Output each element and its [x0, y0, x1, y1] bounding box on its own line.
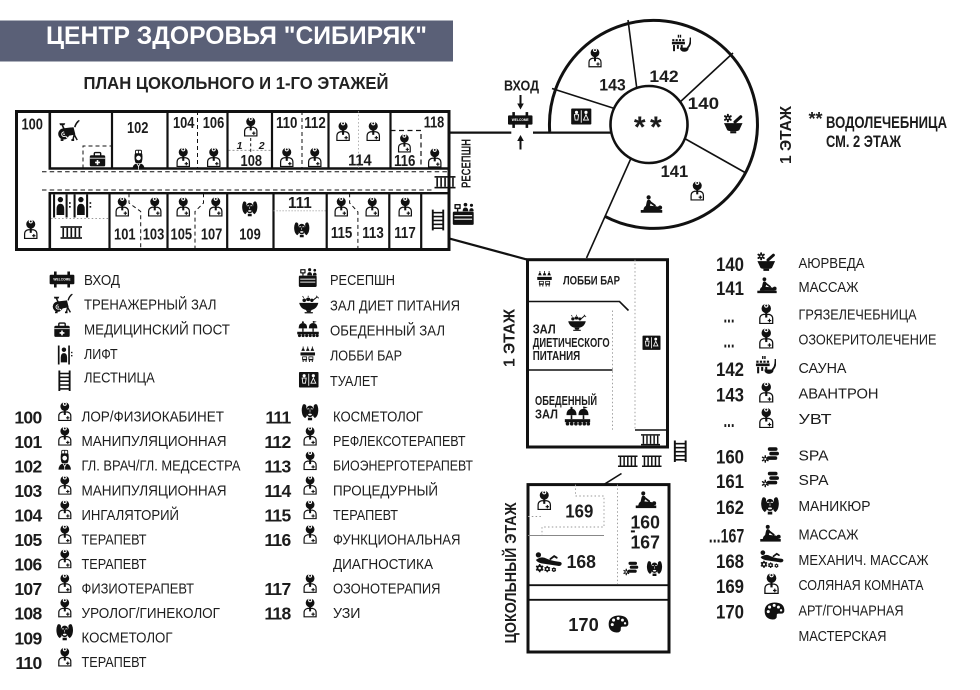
- svg-text:ПИТАНИЯ: ПИТАНИЯ: [533, 349, 581, 363]
- svg-text:...: ...: [724, 411, 735, 432]
- svg-text:ОЗОНОТЕРАПИЯ: ОЗОНОТЕРАПИЯ: [333, 582, 441, 598]
- svg-text:МАНИПУЛЯЦИОННАЯ: МАНИПУЛЯЦИОННАЯ: [82, 434, 227, 450]
- svg-text:МЕХАНИЧ. МАССАЖ: МЕХАНИЧ. МАССАЖ: [799, 553, 930, 569]
- svg-text:103: 103: [143, 226, 165, 243]
- svg-text:ВХОД: ВХОД: [504, 78, 539, 95]
- svg-text:МАССАЖ: МАССАЖ: [799, 280, 860, 296]
- svg-text:110: 110: [276, 115, 298, 132]
- svg-text:114: 114: [264, 481, 291, 501]
- svg-text:105: 105: [14, 530, 42, 550]
- svg-text:106: 106: [14, 555, 42, 575]
- svg-text:ЛОР/ФИЗИОКАБИНЕТ: ЛОР/ФИЗИОКАБИНЕТ: [82, 410, 225, 426]
- svg-text:АЮРВЕДА: АЮРВЕДА: [799, 256, 865, 272]
- svg-text:167: 167: [631, 533, 660, 553]
- svg-text:115: 115: [331, 225, 353, 242]
- svg-text:ЗАЛ: ЗАЛ: [535, 408, 558, 422]
- svg-text:ЗАЛ ДИЕТ ПИТАНИЯ: ЗАЛ ДИЕТ ПИТАНИЯ: [330, 298, 460, 314]
- svg-text:106: 106: [203, 115, 225, 132]
- svg-text:ЛИФТ: ЛИФТ: [84, 347, 118, 363]
- svg-text:142: 142: [716, 360, 744, 381]
- svg-text:ТЕРАПЕВТ: ТЕРАПЕВТ: [333, 508, 398, 524]
- svg-text:...167: ...167: [709, 526, 745, 547]
- svg-text:140: 140: [688, 94, 719, 113]
- svg-text:141: 141: [661, 162, 689, 181]
- svg-text:107: 107: [14, 579, 41, 599]
- svg-text:ФУНКЦИОНАЛЬНАЯ: ФУНКЦИОНАЛЬНАЯ: [333, 532, 461, 548]
- svg-text:114: 114: [348, 152, 372, 169]
- svg-text:118: 118: [424, 115, 445, 132]
- svg-text:КОСМЕТОЛОГ: КОСМЕТОЛОГ: [82, 631, 173, 647]
- svg-text:169: 169: [565, 502, 593, 522]
- svg-text:100: 100: [14, 407, 42, 427]
- svg-text:161: 161: [716, 472, 744, 493]
- svg-text:ВОДОЛЕЧЕБНИЦА: ВОДОЛЕЧЕБНИЦА: [826, 114, 947, 132]
- svg-text:ДИЕТИЧЕСКОГО: ДИЕТИЧЕСКОГО: [533, 336, 610, 350]
- svg-text:140: 140: [716, 255, 744, 276]
- svg-text:168: 168: [716, 552, 744, 573]
- svg-text:КОСМЕТОЛОГ: КОСМЕТОЛОГ: [333, 410, 423, 426]
- svg-text:АВАНТРОН: АВАНТРОН: [799, 387, 879, 403]
- svg-text:ОБЕДЕННЫЙ: ОБЕДЕННЫЙ: [535, 393, 597, 408]
- svg-text:115: 115: [264, 506, 291, 526]
- svg-text:ТЕРАПЕВТ: ТЕРАПЕВТ: [82, 532, 147, 548]
- svg-text:143: 143: [716, 385, 744, 406]
- svg-text:АРТ/ГОНЧАРНАЯ: АРТ/ГОНЧАРНАЯ: [799, 604, 904, 620]
- svg-text:ОБЕДЕННЫЙ ЗАЛ: ОБЕДЕННЫЙ ЗАЛ: [330, 321, 445, 339]
- svg-text:МАСТЕРСКАЯ: МАСТЕРСКАЯ: [799, 629, 887, 645]
- svg-text:162: 162: [716, 498, 744, 519]
- svg-text:ЛЕСТНИЦА: ЛЕСТНИЦА: [84, 371, 155, 387]
- svg-text:ДИАГНОСТИКА: ДИАГНОСТИКА: [333, 557, 433, 573]
- svg-text:143: 143: [599, 76, 626, 95]
- svg-text:109: 109: [14, 628, 42, 648]
- svg-text:...: ...: [724, 306, 735, 327]
- svg-text:МАССАЖ: МАССАЖ: [799, 528, 860, 544]
- svg-text:104: 104: [173, 115, 195, 132]
- svg-text:101: 101: [14, 432, 42, 452]
- svg-text:БИОЭНЕРГОТЕРАПЕВТ: БИОЭНЕРГОТЕРАПЕВТ: [333, 459, 473, 475]
- svg-text:ЛОББИ БАР: ЛОББИ БАР: [563, 274, 620, 288]
- svg-text:СОЛЯНАЯ КОМНАТА: СОЛЯНАЯ КОМНАТА: [799, 578, 924, 594]
- svg-text:МАНИПУЛЯЦИОННАЯ: МАНИПУЛЯЦИОННАЯ: [82, 483, 227, 499]
- svg-text:170: 170: [568, 614, 599, 635]
- svg-text:ЦОКОЛЬНЫЙ ЭТАЖ: ЦОКОЛЬНЫЙ ЭТАЖ: [502, 502, 520, 644]
- svg-text:ОЗОКЕРИТОЛЕЧЕНИЕ: ОЗОКЕРИТОЛЕЧЕНИЕ: [799, 333, 937, 349]
- svg-text:МЕДИЦИНСКИЙ ПОСТ: МЕДИЦИНСКИЙ ПОСТ: [84, 321, 230, 339]
- svg-text:ПРОЦЕДУРНЫЙ: ПРОЦЕДУРНЫЙ: [333, 481, 438, 499]
- svg-text:РЕФЛЕКСОТЕРАПЕВТ: РЕФЛЕКСОТЕРАПЕВТ: [333, 434, 466, 450]
- svg-text:112: 112: [304, 115, 326, 132]
- svg-text:101: 101: [114, 226, 136, 243]
- svg-text:116: 116: [264, 530, 291, 550]
- svg-text:104: 104: [14, 506, 42, 526]
- svg-text:168: 168: [567, 552, 596, 572]
- svg-text:ПЛАН ЦОКОЛЬНОГО И 1-ГО ЭТАЖЕЙ: ПЛАН ЦОКОЛЬНОГО И 1-ГО ЭТАЖЕЙ: [84, 72, 389, 93]
- svg-text:102: 102: [127, 120, 149, 137]
- svg-text:ГРЯЗЕЛЕЧЕБНИЦА: ГРЯЗЕЛЕЧЕБНИЦА: [799, 308, 917, 324]
- svg-text:ИНГАЛЯТОРИЙ: ИНГАЛЯТОРИЙ: [82, 506, 180, 524]
- svg-text:УРОЛОГ/ГИНЕКОЛОГ: УРОЛОГ/ГИНЕКОЛОГ: [82, 606, 221, 622]
- svg-text:УЗИ: УЗИ: [333, 606, 361, 622]
- svg-text:111: 111: [265, 407, 291, 427]
- svg-text:102: 102: [14, 456, 42, 476]
- svg-text:ГЛ. ВРАЧ/ГЛ. МЕДСЕСТРА: ГЛ. ВРАЧ/ГЛ. МЕДСЕСТРА: [82, 459, 241, 475]
- svg-text:110: 110: [15, 653, 42, 673]
- svg-text:108: 108: [14, 604, 42, 624]
- svg-text:169: 169: [716, 577, 744, 598]
- svg-text:ЗАЛ: ЗАЛ: [533, 322, 556, 336]
- svg-text:105: 105: [171, 226, 193, 243]
- svg-text:РЕСЕПШН: РЕСЕПШН: [330, 273, 395, 289]
- svg-text:МАНИКЮР: МАНИКЮР: [799, 499, 871, 515]
- svg-text:109: 109: [239, 226, 261, 243]
- svg-text:ЦЕНТР ЗДОРОВЬЯ "СИБИРЯК": ЦЕНТР ЗДОРОВЬЯ "СИБИРЯК": [46, 22, 427, 50]
- svg-text:100: 100: [21, 117, 43, 134]
- svg-text:ТЕРАПЕВТ: ТЕРАПЕВТ: [82, 557, 147, 573]
- svg-text:ФИЗИОТЕРАПЕВТ: ФИЗИОТЕРАПЕВТ: [82, 582, 195, 598]
- svg-text:108: 108: [241, 153, 263, 170]
- svg-text:118: 118: [264, 604, 291, 624]
- svg-text:SPA: SPA: [799, 449, 829, 465]
- svg-text:111: 111: [288, 195, 312, 212]
- svg-text:103: 103: [14, 481, 42, 501]
- svg-text:ТЕРАПЕВТ: ТЕРАПЕВТ: [82, 655, 147, 671]
- svg-text:1 ЭТАЖ: 1 ЭТАЖ: [502, 308, 519, 367]
- svg-text:142: 142: [649, 67, 678, 86]
- svg-text:112: 112: [264, 432, 291, 452]
- svg-text:113: 113: [362, 225, 384, 242]
- svg-text:...: ...: [724, 331, 735, 352]
- svg-text:117: 117: [394, 225, 416, 242]
- svg-text:1 ЭТАЖ: 1 ЭТАЖ: [778, 105, 795, 164]
- svg-text:116: 116: [394, 153, 416, 170]
- svg-text:113: 113: [264, 456, 291, 476]
- svg-text:160: 160: [631, 512, 660, 532]
- svg-text:141: 141: [716, 279, 744, 300]
- svg-text:УВТ: УВТ: [799, 412, 832, 428]
- svg-text:160: 160: [716, 447, 744, 468]
- svg-text:**: **: [634, 111, 666, 144]
- svg-text:**: **: [809, 109, 823, 129]
- svg-text:170: 170: [716, 602, 744, 623]
- svg-text:ТРЕНАЖЕРНЫЙ ЗАЛ: ТРЕНАЖЕРНЫЙ ЗАЛ: [84, 295, 216, 313]
- svg-text:117: 117: [264, 579, 290, 599]
- svg-text:ТУАЛЕТ: ТУАЛЕТ: [330, 374, 378, 390]
- svg-text:СМ. 2 ЭТАЖ: СМ. 2 ЭТАЖ: [826, 133, 901, 151]
- svg-text:ВХОД: ВХОД: [84, 273, 120, 289]
- svg-text:САУНА: САУНА: [799, 361, 847, 377]
- svg-text:РЕСЕПШН: РЕСЕПШН: [459, 139, 474, 188]
- svg-text:107: 107: [201, 226, 223, 243]
- svg-text:SPA: SPA: [799, 473, 829, 489]
- svg-text:ЛОББИ БАР: ЛОББИ БАР: [330, 348, 402, 364]
